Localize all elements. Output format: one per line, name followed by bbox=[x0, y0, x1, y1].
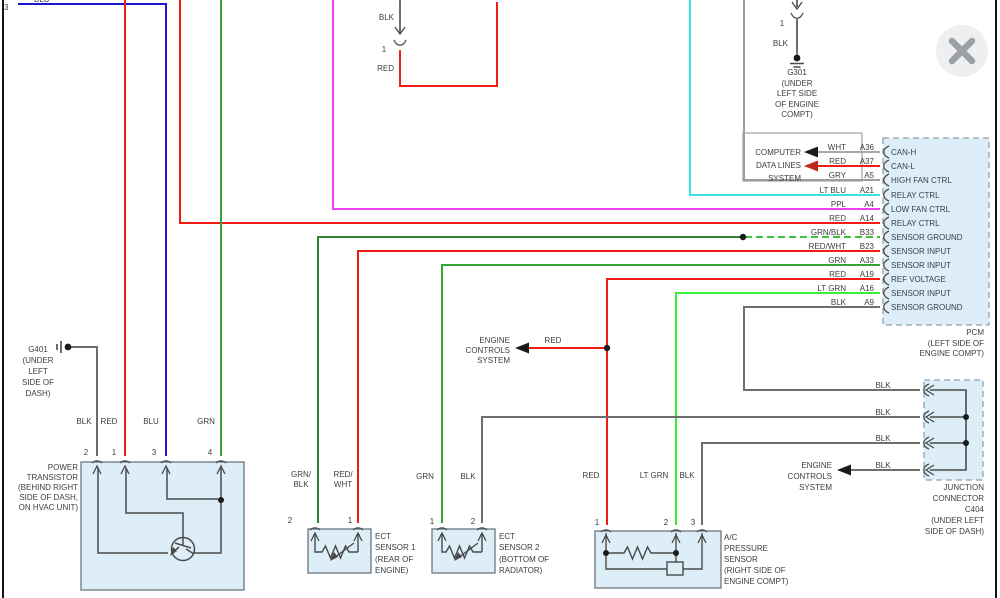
ect1-pin-number: 2 bbox=[284, 516, 296, 525]
junction-wire-label: BLK bbox=[869, 434, 897, 443]
ac-pin-number: 3 bbox=[687, 518, 699, 527]
junction-connector-label: JUNCTION CONNECTOR C404 (UNDER LEFT SIDE… bbox=[880, 482, 984, 537]
arrow-engine-controls-mid bbox=[515, 343, 529, 354]
wire-red-top-mid bbox=[400, 2, 497, 86]
ect2-label: ECT SENSOR 2 (BOTTOM OF RADIATOR) bbox=[499, 531, 575, 576]
pcm-row-pin: A9 bbox=[850, 298, 874, 307]
pcm-row-pin: B23 bbox=[850, 242, 874, 251]
ect2-pin-number: 2 bbox=[467, 517, 479, 526]
engine-controls-wire-label: RED bbox=[538, 336, 568, 345]
pcm-row-color: LT BLU bbox=[766, 186, 846, 195]
pcm-row-color: RED bbox=[766, 214, 846, 223]
junction-dots bbox=[218, 234, 969, 556]
pcm-row-port: LOW FAN CTRL bbox=[891, 205, 950, 214]
top-left-wire-label: BLU bbox=[34, 0, 50, 4]
engine-controls-system-mid-label: ENGINE CONTROLS SYSTEM bbox=[438, 336, 510, 366]
ect2-wire-label: GRN bbox=[411, 472, 439, 481]
pcm-row-color: RED bbox=[766, 157, 846, 166]
g301-wire-label: BLK bbox=[758, 39, 788, 48]
wiring-diagram-viewer: 3 BLU BLK 1 RED 1 BLK G301 (UNDER LEFT S… bbox=[0, 0, 1000, 598]
dot-ac-1 bbox=[603, 550, 609, 556]
pt-wire-label: GRN bbox=[192, 417, 220, 426]
pcm-row-color: PPL bbox=[766, 200, 846, 209]
pcm-row-pin: A21 bbox=[850, 186, 874, 195]
pcm-row-pin: A37 bbox=[850, 157, 874, 166]
ac-wire-label: LT GRN bbox=[637, 471, 671, 480]
top-left-pin-number: 3 bbox=[4, 3, 14, 12]
pcm-row-port: SENSOR INPUT bbox=[891, 261, 951, 270]
arrow-engine-controls-right bbox=[837, 465, 851, 476]
pcm-row-color: WHT bbox=[766, 143, 846, 152]
pcm-row-color: RED bbox=[766, 270, 846, 279]
ect1-pin-number: 1 bbox=[344, 516, 356, 525]
ground-symbols bbox=[57, 52, 804, 353]
close-icon bbox=[936, 25, 988, 77]
pcm-row-pin: A36 bbox=[850, 143, 874, 152]
pcm-row-port: REF VOLTAGE bbox=[891, 275, 946, 284]
g301-pin-number: 1 bbox=[776, 19, 788, 28]
ac-pin-number: 1 bbox=[591, 518, 603, 527]
mid-top-pin-number: 1 bbox=[378, 45, 390, 54]
pcm-row-pin: B33 bbox=[850, 228, 874, 237]
pcm-row-pin: A33 bbox=[850, 256, 874, 265]
pcm-row-port: SENSOR INPUT bbox=[891, 289, 951, 298]
left-frame-border bbox=[2, 0, 4, 598]
ect-sensor-1-box bbox=[308, 529, 371, 573]
pcm-row-port: RELAY CTRL bbox=[891, 191, 940, 200]
wire-blk-g401 bbox=[71, 347, 97, 456]
pcm-row-port: SENSOR GROUND bbox=[891, 303, 963, 312]
pcm-row-port: HIGH FAN CTRL bbox=[891, 176, 952, 185]
ect1-wire1-label: GRN/ BLK bbox=[287, 470, 315, 490]
g401-label: G401 (UNDER LEFT SIDE OF DASH) bbox=[6, 344, 70, 399]
pcm-row-port: CAN-H bbox=[891, 148, 916, 157]
close-button[interactable] bbox=[936, 25, 988, 77]
dot-b33 bbox=[740, 234, 746, 240]
pt-wire-label: BLK bbox=[70, 417, 98, 426]
pcm-row-port: SENSOR GROUND bbox=[891, 233, 963, 242]
mid-top-wire-red-label: RED bbox=[366, 64, 394, 73]
right-frame-border bbox=[995, 0, 997, 598]
pcm-row-color: GRY bbox=[766, 171, 846, 180]
pt-wire-label: RED bbox=[95, 417, 123, 426]
pcm-row-pin: A14 bbox=[850, 214, 874, 223]
pcm-row-color: GRN/BLK bbox=[766, 228, 846, 237]
ect2-wire-label: BLK bbox=[454, 472, 482, 481]
pcm-row-port: CAN-L bbox=[891, 162, 915, 171]
pcm-row-port: SENSOR INPUT bbox=[891, 247, 951, 256]
dot-red-branch bbox=[604, 345, 610, 351]
power-transistor-label: POWER TRANSISTOR (BEHIND RIGHT SIDE OF D… bbox=[0, 463, 78, 513]
pt-wire-label: BLU bbox=[137, 417, 165, 426]
pcm-row-pin: A5 bbox=[850, 171, 874, 180]
pcm-row-pin: A4 bbox=[850, 200, 874, 209]
pcm-label: PCM (LEFT SIDE OF ENGINE COMPT) bbox=[884, 328, 984, 360]
ac-sensor-label: A/C PRESSURE SENSOR (RIGHT SIDE OF ENGIN… bbox=[724, 532, 814, 587]
pcm-row-color: RED/WHT bbox=[766, 242, 846, 251]
power-transistor-box bbox=[81, 462, 244, 590]
pt-pin-number: 3 bbox=[148, 448, 160, 457]
pt-pin-number: 2 bbox=[80, 448, 92, 457]
pcm-row-pin: A19 bbox=[850, 270, 874, 279]
ac-wire-label: RED bbox=[577, 471, 605, 480]
pcm-row-pin: A16 bbox=[850, 284, 874, 293]
engine-controls-system-right-label: ENGINE CONTROLS SYSTEM bbox=[758, 460, 832, 493]
mid-top-wire-blk-label: BLK bbox=[366, 13, 394, 22]
ect2-pin-number: 1 bbox=[426, 517, 438, 526]
pcm-row-color: GRN bbox=[766, 256, 846, 265]
g301-ground-icon bbox=[790, 52, 804, 67]
junction-wire-label: BLK bbox=[869, 381, 897, 390]
dot-pt bbox=[218, 497, 224, 503]
pt-pin-number: 4 bbox=[204, 448, 216, 457]
ac-pin-number: 2 bbox=[660, 518, 672, 527]
ect1-label: ECT SENSOR 1 (REAR OF ENGINE) bbox=[375, 531, 447, 576]
ect1-wire2-label: RED/ WHT bbox=[329, 470, 357, 490]
dot-junction-row2 bbox=[963, 414, 969, 420]
ac-wire-label: BLK bbox=[673, 471, 701, 480]
junction-wire-label: BLK bbox=[869, 408, 897, 417]
junction-wire-label: BLK bbox=[869, 461, 897, 470]
dot-junction-row3 bbox=[963, 440, 969, 446]
pcm-row-color: LT GRN bbox=[766, 284, 846, 293]
dot-ac-2 bbox=[673, 550, 679, 556]
pcm-row-port: RELAY CTRL bbox=[891, 219, 940, 228]
pt-pin-number: 1 bbox=[108, 448, 120, 457]
pcm-row-color: BLK bbox=[766, 298, 846, 307]
g301-label: G301 (UNDER LEFT SIDE OF ENGINE COMPT) bbox=[755, 68, 839, 121]
